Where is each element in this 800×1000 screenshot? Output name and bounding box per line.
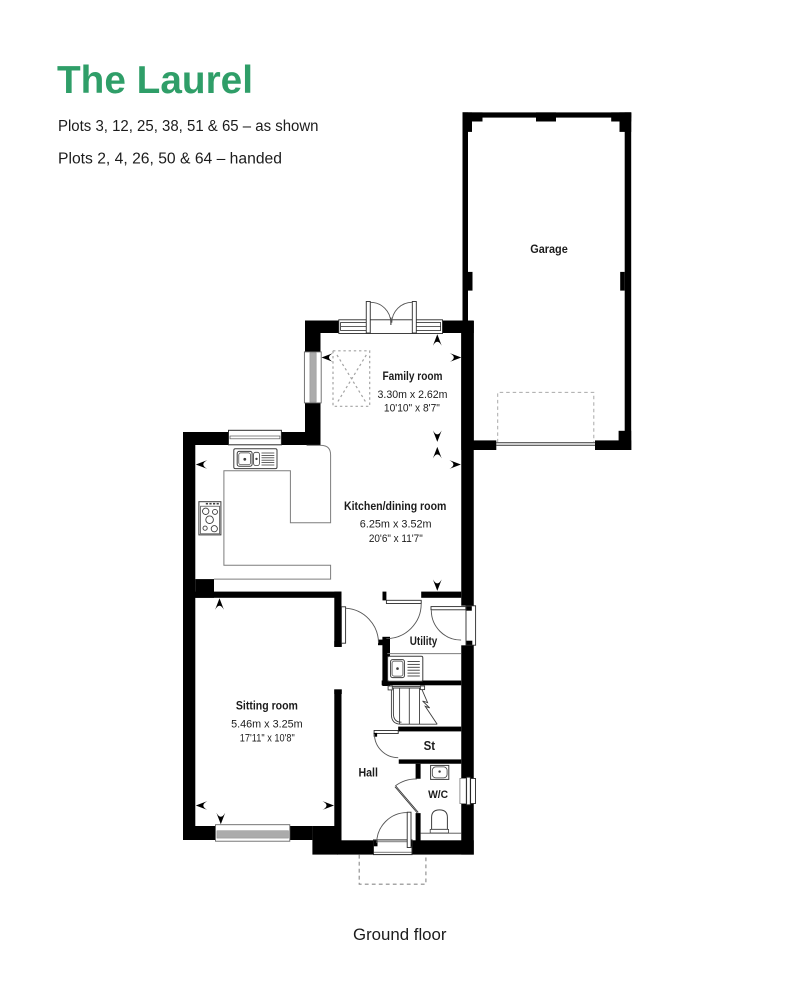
svg-text:Hall: Hall	[358, 766, 378, 780]
svg-text:5.46m x 3.25m: 5.46m x 3.25m	[231, 719, 303, 731]
svg-text:Family room: Family room	[383, 371, 443, 383]
svg-text:The Laurel: The Laurel	[57, 59, 253, 102]
svg-text:17'11" x 10'8": 17'11" x 10'8"	[240, 733, 295, 745]
svg-text:Plots 2, 4, 26, 50 & 64 – hand: Plots 2, 4, 26, 50 & 64 – handed	[58, 151, 282, 168]
svg-text:St: St	[424, 739, 436, 753]
svg-text:3.30m x 2.62m: 3.30m x 2.62m	[378, 389, 448, 401]
svg-text:20'6" x 11'7": 20'6" x 11'7"	[369, 533, 423, 545]
svg-text:W/C: W/C	[428, 789, 448, 801]
svg-text:10'10" x 8'7": 10'10" x 8'7"	[384, 402, 440, 414]
svg-text:Garage: Garage	[530, 242, 568, 256]
svg-text:Kitchen/dining room: Kitchen/dining room	[344, 501, 446, 513]
svg-text:6.25m x 3.52m: 6.25m x 3.52m	[360, 519, 432, 531]
svg-text:Ground floor: Ground floor	[353, 926, 447, 944]
svg-text:Plots 3, 12, 25, 38, 51 & 65 –: Plots 3, 12, 25, 38, 51 & 65 – as shown	[58, 118, 319, 135]
svg-text:Utility: Utility	[410, 634, 438, 648]
svg-text:Sitting room: Sitting room	[236, 701, 298, 713]
